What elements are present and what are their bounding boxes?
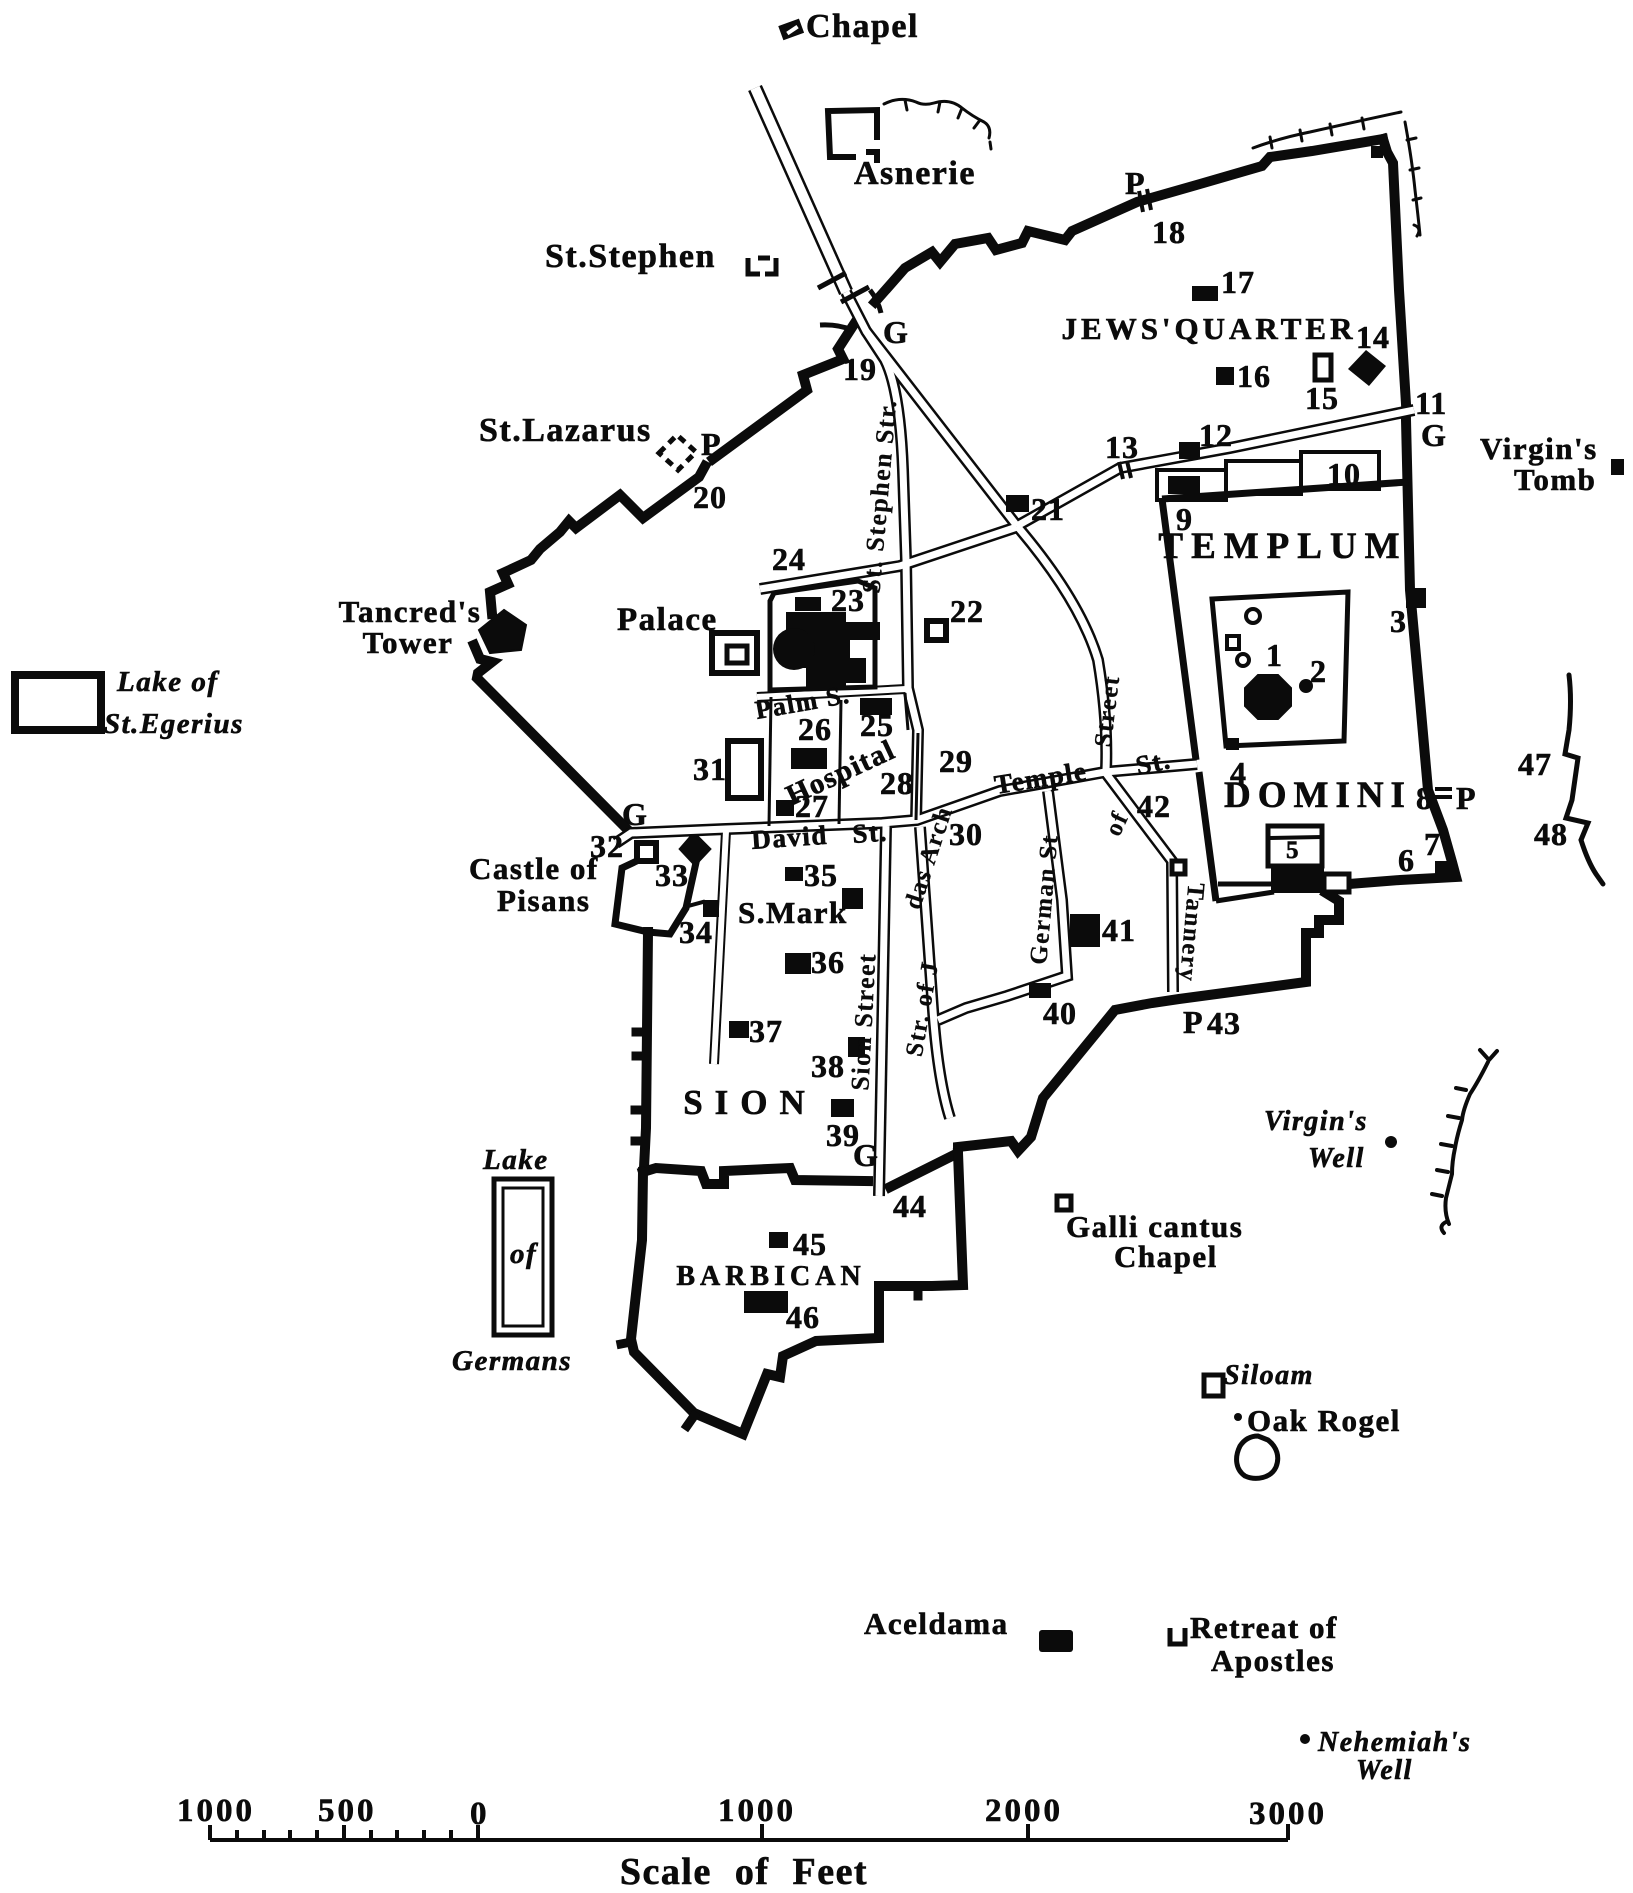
svg-text:44: 44 — [893, 1188, 927, 1224]
svg-text:28: 28 — [880, 765, 914, 801]
svg-text:10: 10 — [1327, 456, 1361, 492]
svg-text:23: 23 — [831, 582, 865, 618]
svg-text:31: 31 — [693, 751, 727, 787]
svg-text:26: 26 — [798, 711, 832, 747]
svg-text:1: 1 — [1266, 637, 1283, 673]
svg-text:Scale of Feet: Scale of Feet — [620, 1851, 868, 1893]
svg-text:St.Egerius: St.Egerius — [104, 708, 244, 740]
svg-text:42: 42 — [1137, 788, 1171, 824]
svg-text:21: 21 — [1031, 491, 1065, 527]
svg-text:5: 5 — [1286, 837, 1300, 864]
svg-text:38: 38 — [811, 1048, 845, 1084]
svg-text:Castle of: Castle of — [469, 851, 599, 886]
svg-text:P: P — [1183, 1004, 1204, 1040]
svg-text:3000: 3000 — [1249, 1796, 1327, 1832]
svg-text:Siloam: Siloam — [1224, 1360, 1314, 1391]
svg-text:33: 33 — [655, 857, 689, 893]
svg-text:22: 22 — [950, 593, 984, 629]
svg-text:Pisans: Pisans — [497, 883, 590, 918]
svg-text:1000: 1000 — [177, 1793, 255, 1829]
svg-text:25: 25 — [860, 707, 894, 743]
svg-text:Oak Rogel: Oak Rogel — [1247, 1403, 1401, 1438]
svg-text:Tower: Tower — [363, 625, 454, 660]
svg-text:SION: SION — [683, 1083, 817, 1122]
svg-text:St.Stephen: St.Stephen — [545, 238, 716, 275]
svg-text:24: 24 — [772, 541, 806, 577]
svg-text:16: 16 — [1237, 358, 1271, 394]
svg-text:St.: St. — [851, 817, 888, 849]
svg-text:G: G — [853, 1137, 879, 1173]
svg-text:48: 48 — [1534, 816, 1568, 852]
svg-text:13: 13 — [1105, 429, 1139, 465]
svg-text:37: 37 — [749, 1013, 783, 1049]
svg-text:19: 19 — [843, 351, 877, 387]
svg-text:G: G — [883, 314, 909, 350]
svg-text:Lake of: Lake of — [116, 666, 220, 698]
svg-text:8: 8 — [1416, 780, 1433, 816]
svg-text:S.Mark: S.Mark — [738, 895, 848, 930]
svg-text:4: 4 — [1230, 755, 1247, 791]
svg-text:0: 0 — [470, 1796, 490, 1832]
svg-text:Tancred's: Tancred's — [339, 594, 482, 629]
svg-text:Virgin's: Virgin's — [1480, 431, 1598, 466]
svg-text:Chapel: Chapel — [806, 8, 919, 45]
svg-text:29: 29 — [939, 743, 973, 779]
svg-text:11: 11 — [1415, 385, 1447, 421]
svg-text:30: 30 — [949, 816, 983, 852]
svg-text:500: 500 — [318, 1793, 377, 1829]
svg-text:David: David — [750, 820, 828, 855]
svg-text:P: P — [701, 426, 722, 462]
svg-text:Virgin's: Virgin's — [1264, 1106, 1368, 1137]
svg-text:TEMPLUM: TEMPLUM — [1158, 526, 1407, 567]
svg-text:Tomb: Tomb — [1514, 462, 1596, 497]
svg-text:41: 41 — [1102, 912, 1136, 948]
svg-text:Lake: Lake — [482, 1144, 549, 1176]
svg-text:12: 12 — [1199, 417, 1233, 453]
svg-text:14: 14 — [1356, 319, 1390, 355]
svg-text:17: 17 — [1221, 264, 1255, 300]
svg-text:35: 35 — [804, 857, 838, 893]
svg-text:43: 43 — [1207, 1005, 1241, 1041]
svg-text:P: P — [1456, 780, 1477, 816]
svg-text:Apostles: Apostles — [1211, 1643, 1335, 1678]
svg-text:36: 36 — [811, 944, 845, 980]
svg-text:7: 7 — [1424, 826, 1441, 862]
svg-text:Retreat of: Retreat of — [1190, 1610, 1338, 1645]
svg-text:18: 18 — [1152, 214, 1186, 250]
svg-text:9: 9 — [1176, 501, 1193, 537]
svg-text:3: 3 — [1390, 603, 1407, 639]
svg-text:P: P — [1125, 165, 1146, 201]
svg-text:Well: Well — [1308, 1143, 1365, 1174]
svg-text:Germans: Germans — [452, 1345, 572, 1377]
svg-text:Chapel: Chapel — [1114, 1239, 1218, 1274]
svg-text:47: 47 — [1518, 746, 1552, 782]
svg-text:DOMINI: DOMINI — [1224, 775, 1412, 816]
svg-text:15: 15 — [1305, 380, 1339, 416]
svg-text:Aceldama: Aceldama — [864, 1606, 1009, 1641]
svg-text:Well: Well — [1356, 1755, 1413, 1786]
svg-text:6: 6 — [1398, 842, 1415, 878]
svg-text:G: G — [1421, 417, 1447, 453]
svg-text:BARBICAN: BARBICAN — [676, 1261, 865, 1292]
svg-text:Palace: Palace — [617, 602, 718, 638]
svg-text:2: 2 — [1310, 653, 1327, 689]
svg-text:of: of — [510, 1238, 539, 1270]
svg-text:34: 34 — [679, 914, 713, 950]
svg-text:Asnerie: Asnerie — [854, 155, 976, 192]
svg-text:G: G — [622, 796, 648, 832]
svg-text:1000: 1000 — [718, 1793, 796, 1829]
svg-text:40: 40 — [1043, 995, 1077, 1031]
svg-text:Nehemiah's: Nehemiah's — [1317, 1727, 1471, 1758]
svg-text:45: 45 — [793, 1226, 827, 1262]
svg-text:46: 46 — [786, 1299, 820, 1335]
svg-text:JEWS'QUARTER: JEWS'QUARTER — [1062, 311, 1357, 346]
svg-text:32: 32 — [590, 828, 624, 864]
svg-text:St.Lazarus: St.Lazarus — [479, 412, 652, 449]
svg-text:20: 20 — [693, 479, 727, 515]
svg-text:2000: 2000 — [985, 1793, 1063, 1829]
svg-text:27: 27 — [795, 788, 829, 824]
